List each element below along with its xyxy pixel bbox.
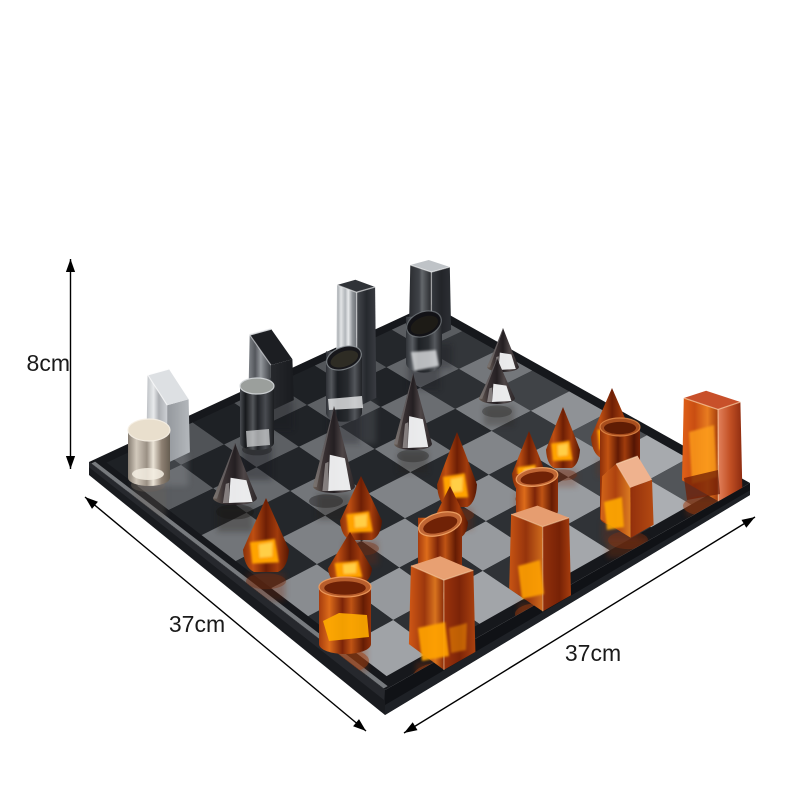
- svg-text:8cm: 8cm: [27, 350, 70, 376]
- svg-text:37cm: 37cm: [169, 611, 225, 637]
- svg-text:37cm: 37cm: [565, 640, 621, 666]
